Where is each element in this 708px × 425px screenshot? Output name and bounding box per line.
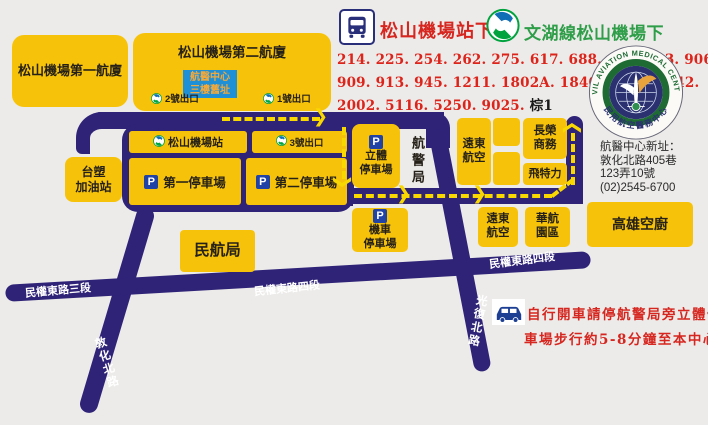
parking-icon: P <box>369 135 383 149</box>
metro-line-title: 文湖線松山機場下 <box>524 19 664 44</box>
caa-label: 民航局 <box>194 242 241 260</box>
building-cal-park: 華航 園區 <box>525 207 570 247</box>
parking-lot2-label: 第二停車場 <box>275 172 338 191</box>
metro-icon <box>151 93 162 107</box>
parking-icon: P <box>256 175 270 189</box>
multi-parking-label-1: 立體 <box>365 150 387 163</box>
parking-lot1-label: 第一停車場 <box>163 172 226 191</box>
fitly-label: 飛特力 <box>529 168 562 181</box>
route-arrow-east-3: ❯ <box>472 185 487 203</box>
building-multistory-parking: P 立體 停車場 <box>352 124 400 188</box>
exit2-label: 2號出口 <box>165 94 199 105</box>
parking-icon: P <box>144 175 158 189</box>
metro-icon <box>263 93 274 107</box>
drive-note-line1: 自行開車請停航警局旁立體停 <box>527 303 708 323</box>
route-segment-down <box>342 127 346 179</box>
metro-station-cell: 松山機場站 <box>129 131 247 153</box>
evergreen-label-1: 長榮 <box>534 125 557 139</box>
metro-icon <box>153 135 165 150</box>
multi-parking-label-2: 停車場 <box>360 164 393 177</box>
building-fareast-air-south: 遠東 航空 <box>478 207 518 247</box>
parking-icon: P <box>373 209 387 223</box>
old-site-line1: 航醫中心 <box>190 71 230 84</box>
metro-station-label: 松山機場站 <box>168 134 223 150</box>
fareast-north-label-1: 遠東 <box>463 138 486 152</box>
building-caa: 民航局 <box>180 230 255 272</box>
building-terminal1: 松山機場第一航廈 <box>12 35 128 107</box>
building-kaohsiung-kitchen: 高雄空廚 <box>587 202 693 247</box>
car-icon <box>492 299 525 325</box>
terminal2-label: 松山機場第二航廈 <box>178 45 286 61</box>
route-segment-top <box>222 117 320 121</box>
route-arrow-up: ❯ <box>563 120 581 135</box>
exit1: 1號出口 <box>263 93 311 107</box>
taipei-metro-logo <box>486 6 520 50</box>
gas-label-2: 加油站 <box>75 180 111 194</box>
address-line2: 敦化北路405巷 <box>600 155 681 169</box>
drive-note-line2: 車場步行約5-8分鐘至本中心 <box>524 328 708 348</box>
fareast-south-label-1: 遠東 <box>487 213 510 227</box>
cam-center-logo: CIVIL AVIATION MEDICAL CENTER 民用航空醫務中心 <box>586 44 686 146</box>
route-arrow-down: ❯ <box>334 174 352 189</box>
cal-park-label-1: 華航 <box>536 213 559 227</box>
cal-park-label-2: 園區 <box>536 227 559 241</box>
kitchen-label: 高雄空廚 <box>612 216 668 233</box>
metro-icon <box>276 135 287 149</box>
building-small-lower <box>493 152 520 185</box>
route-arrow-east-2: ❯ <box>396 185 411 203</box>
route-arrow-east-1: ❯ <box>313 108 328 126</box>
bus-routes-line3-numbers: 2002. 5116. 5250. 9025. <box>337 98 525 114</box>
terminal1-label: 松山機場第一航廈 <box>18 63 122 78</box>
exit3-cell: 3號出口 <box>252 131 347 153</box>
address-line3: 123弄10號 <box>600 168 681 182</box>
route-segment-up <box>571 133 575 185</box>
bus-routes-brown1: 棕1 <box>530 98 553 114</box>
building-fitly: 飛特力 <box>523 163 567 185</box>
airport-direction-map: 松山機場站 3號出口 P 第一停車場 P 第二停車場 松山機場第一航廈 松山機場… <box>0 0 708 425</box>
bus-stop-title: 松山機場站下 <box>380 17 494 43</box>
bus-icon <box>339 9 375 45</box>
police-bureau-label: 航警局 <box>408 136 427 187</box>
building-terminal2: 松山機場第二航廈 航醫中心 三樓舊址 2號出口 1號出口 <box>133 33 331 111</box>
exit1-label: 1號出口 <box>277 94 311 105</box>
moto-parking-label-2: 停車場 <box>364 238 397 251</box>
exit2: 2號出口 <box>151 93 199 107</box>
building-moto-parking: P 機車 停車場 <box>352 208 408 252</box>
building-gas-station: 台塑 加油站 <box>65 157 122 202</box>
evergreen-label-2: 商務 <box>534 139 557 153</box>
building-small-upper <box>493 118 520 146</box>
building-fareast-air-north: 遠東 航空 <box>457 118 491 185</box>
address-line4: (02)2545-6700 <box>600 182 681 196</box>
parking-compound: 松山機場站 3號出口 P 第一停車場 P 第二停車場 <box>122 124 354 212</box>
parking-lot1: P 第一停車場 <box>129 158 241 205</box>
route-segment-internal <box>354 194 552 198</box>
new-address-block: 航醫中心新址： 敦化北路405巷 123弄10號 (02)2545-6700 <box>600 141 681 195</box>
moto-parking-label-1: 機車 <box>369 224 391 237</box>
address-line1: 航醫中心新址： <box>600 141 681 155</box>
fareast-south-label-2: 航空 <box>487 227 510 241</box>
gas-label-1: 台塑 <box>81 165 105 179</box>
exit3-label: 3號出口 <box>290 135 324 149</box>
fareast-north-label-2: 航空 <box>463 152 486 166</box>
road-terminal-front-hook <box>76 112 108 154</box>
